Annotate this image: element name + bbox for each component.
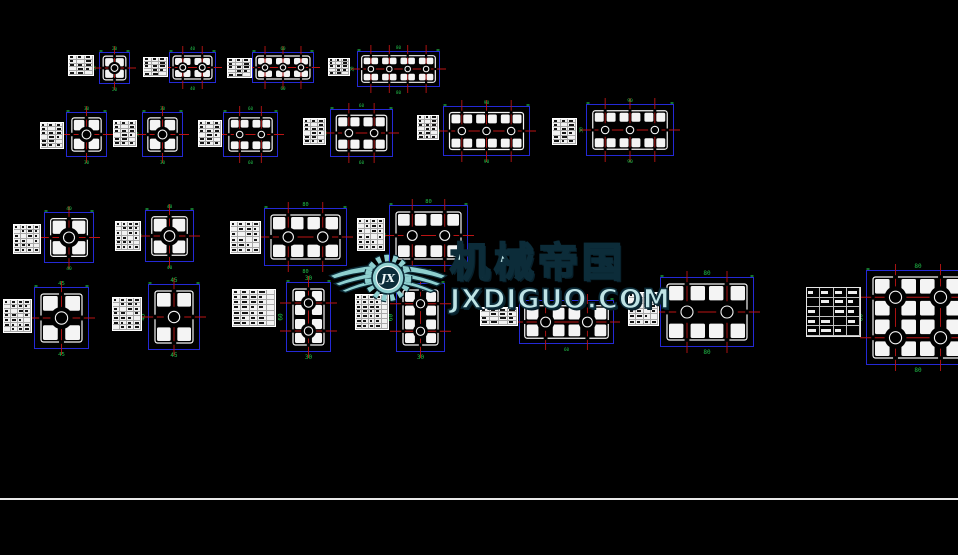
- svg-text:80: 80: [914, 263, 922, 270]
- spec-table-20x60[interactable]: [227, 58, 252, 78]
- profile-drawing-80x80[interactable]: 808080: [856, 260, 958, 375]
- svg-text:80: 80: [396, 45, 402, 50]
- svg-text:30: 30: [160, 106, 166, 111]
- profile-drawing-20x20[interactable]: 202020: [89, 42, 140, 94]
- svg-text:40: 40: [190, 86, 196, 91]
- profile-drawing-20x80[interactable]: 808020: [347, 41, 450, 97]
- watermark-site-text: JXDIGUO.COM: [450, 286, 671, 313]
- svg-text:60: 60: [564, 347, 570, 352]
- svg-text:30: 30: [305, 354, 313, 361]
- profile-drawing-30x30-b[interactable]: 303030: [132, 102, 193, 167]
- spec-table-40x40-a[interactable]: [13, 224, 41, 254]
- svg-text:90: 90: [627, 98, 633, 104]
- svg-text:30: 30: [417, 354, 425, 361]
- svg-text:80: 80: [703, 349, 711, 356]
- watermark-wings-gear-icon: JX: [328, 245, 448, 311]
- spec-table-40x40-b[interactable]: [115, 221, 141, 251]
- svg-text:60: 60: [248, 106, 254, 111]
- svg-text:20: 20: [112, 46, 118, 51]
- profile-drawing-45x45-a[interactable]: 454545: [24, 277, 99, 359]
- profile-drawing-40x40-b[interactable]: 404040: [135, 200, 204, 272]
- svg-text:40: 40: [167, 265, 173, 271]
- gear-icon: JX: [368, 258, 408, 298]
- spec-table-80x80[interactable]: [806, 287, 861, 337]
- svg-text:40: 40: [66, 266, 72, 272]
- svg-text:30: 30: [84, 106, 90, 111]
- spec-table-20x40[interactable]: [143, 57, 168, 77]
- svg-text:60: 60: [248, 160, 254, 165]
- svg-text:80: 80: [425, 199, 432, 205]
- svg-text:30: 30: [305, 275, 313, 282]
- profile-drawing-40x40-a[interactable]: 404040: [34, 202, 104, 273]
- spec-table-20x80[interactable]: [328, 58, 350, 76]
- profile-drawing-20x40[interactable]: 404020: [159, 42, 226, 93]
- spec-table-30x60-b[interactable]: [303, 118, 326, 145]
- watermark-brand-text: 机械帝国: [450, 243, 671, 283]
- svg-text:80: 80: [396, 90, 402, 95]
- svg-text:90: 90: [627, 159, 633, 165]
- svg-text:90: 90: [484, 159, 490, 165]
- spec-table-30x30-b[interactable]: [113, 120, 137, 147]
- svg-text:60: 60: [280, 86, 286, 91]
- spec-table-20x20[interactable]: [68, 55, 94, 76]
- svg-text:60: 60: [280, 46, 286, 51]
- spec-table-30x90-b[interactable]: [552, 118, 577, 145]
- svg-text:60: 60: [278, 313, 285, 321]
- svg-text:40: 40: [66, 206, 72, 212]
- svg-text:80: 80: [703, 270, 711, 277]
- profile-drawing-30x90-b[interactable]: 909030: [576, 94, 684, 166]
- svg-text:45: 45: [170, 277, 178, 284]
- svg-text:45: 45: [170, 352, 178, 359]
- svg-text:90: 90: [484, 100, 490, 106]
- svg-text:30: 30: [84, 160, 90, 165]
- svg-text:40: 40: [190, 46, 196, 51]
- svg-text:30: 30: [160, 160, 166, 165]
- svg-text:80: 80: [302, 202, 308, 208]
- svg-text:60: 60: [359, 160, 365, 166]
- watermark-text-block: 机械帝国 JXDIGUO.COM: [450, 243, 671, 313]
- spec-table-45x45-b[interactable]: [112, 297, 142, 331]
- spec-table-30x60-v-a[interactable]: [232, 289, 276, 327]
- profile-drawing-30x60-b[interactable]: 606030: [320, 99, 403, 167]
- svg-text:60: 60: [359, 103, 365, 109]
- spec-table-30x90-a[interactable]: [417, 115, 439, 140]
- spec-table-30x60-a[interactable]: [198, 120, 222, 147]
- svg-text:80: 80: [914, 367, 922, 374]
- svg-text:30: 30: [579, 127, 585, 133]
- watermark: JX 机械帝国 JXDIGUO.COM: [328, 243, 671, 313]
- svg-text:20: 20: [112, 87, 118, 92]
- svg-text:45: 45: [58, 281, 65, 287]
- profile-drawing-30x30-a[interactable]: 303030: [56, 102, 117, 167]
- svg-text:40: 40: [167, 204, 173, 210]
- layout-divider-line: [0, 498, 958, 500]
- svg-text:20: 20: [350, 66, 355, 72]
- watermark-monogram: JX: [379, 271, 396, 285]
- svg-text:45: 45: [58, 352, 65, 358]
- spec-table-40x80-a[interactable]: [230, 221, 261, 254]
- spec-table-30x30-a[interactable]: [40, 122, 64, 149]
- profile-drawing-30x60-a[interactable]: 606030: [213, 102, 288, 167]
- profile-drawing-20x60[interactable]: 606020: [242, 42, 324, 93]
- profile-drawing-30x90-a[interactable]: 909030: [433, 96, 540, 166]
- cad-viewport[interactable]: JX 机械帝国 JXDIGUO.COM 20202040402060602080…: [0, 0, 958, 555]
- spec-table-45x45-a[interactable]: [3, 299, 32, 333]
- profile-drawing-45x45-b[interactable]: 454545: [138, 274, 210, 360]
